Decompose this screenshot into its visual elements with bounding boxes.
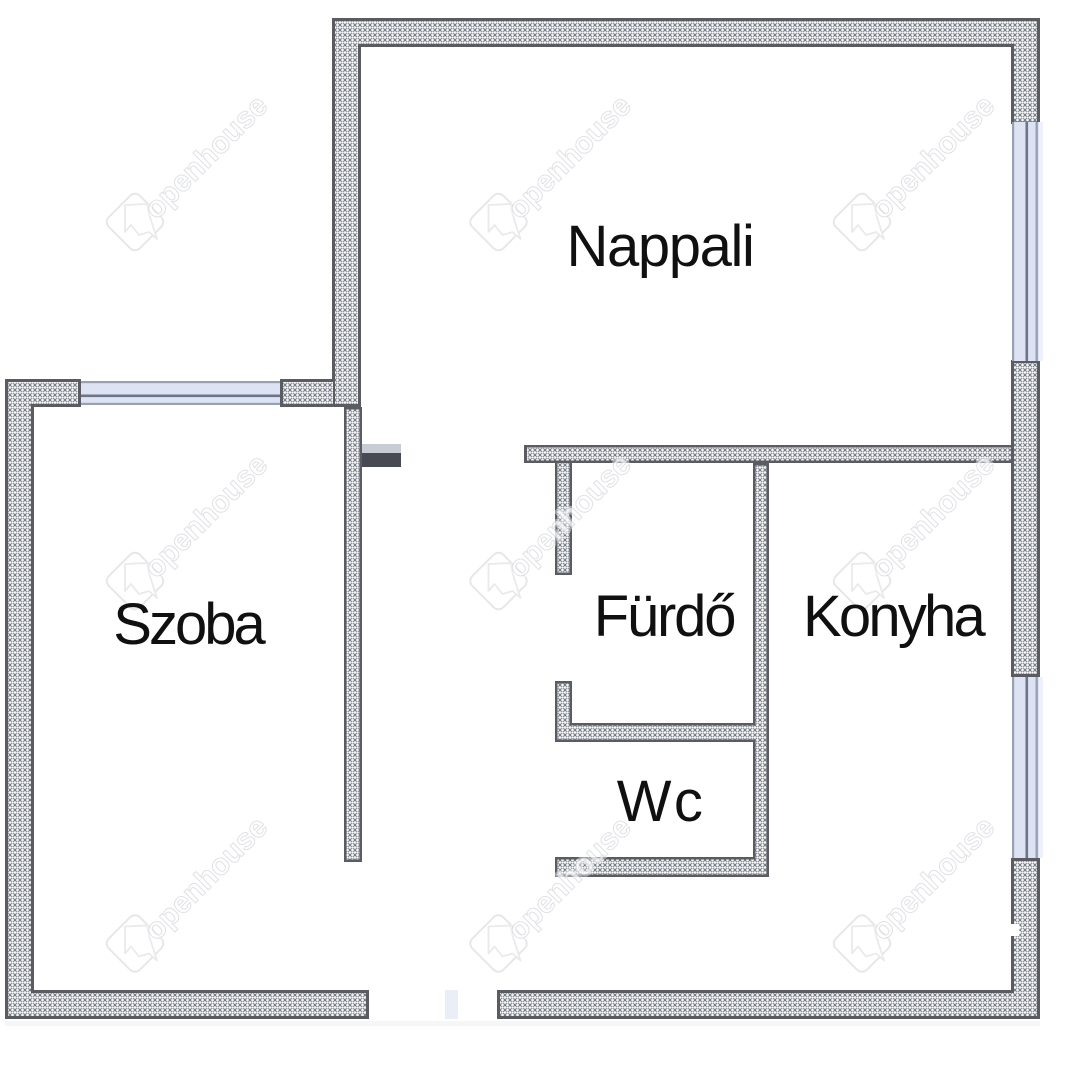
svg-text:Szoba: Szoba bbox=[113, 592, 266, 657]
svg-text:Fürdő: Fürdő bbox=[594, 584, 735, 649]
svg-text:Wc: Wc bbox=[617, 769, 706, 834]
svg-text:Konyha: Konyha bbox=[803, 584, 986, 649]
svg-text:Nappali: Nappali bbox=[567, 214, 754, 279]
